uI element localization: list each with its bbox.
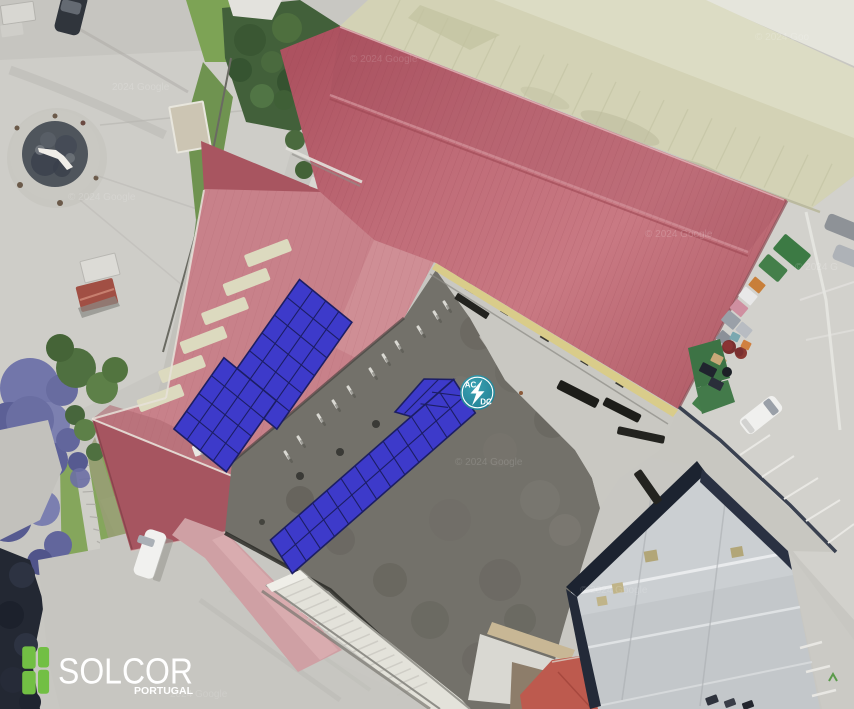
svg-text:© 2024 Google: © 2024 Google: [68, 192, 136, 203]
svg-text:© 2024 Goo: © 2024 Goo: [755, 32, 810, 43]
svg-text:© 2024 Google: © 2024 Google: [350, 54, 418, 65]
svg-text:2024 Google: 2024 Google: [112, 82, 170, 93]
svg-text:© 2024 Google: © 2024 Google: [580, 585, 648, 596]
svg-text:© 2024 Google: © 2024 Google: [645, 229, 713, 240]
svg-text:DC: DC: [480, 398, 492, 407]
svg-text:© 2024 Google: © 2024 Google: [455, 457, 523, 468]
svg-text:© 2024 G: © 2024 G: [795, 262, 838, 273]
svg-text:PORTUGAL: PORTUGAL: [134, 685, 194, 697]
svg-text:AC: AC: [465, 381, 477, 390]
